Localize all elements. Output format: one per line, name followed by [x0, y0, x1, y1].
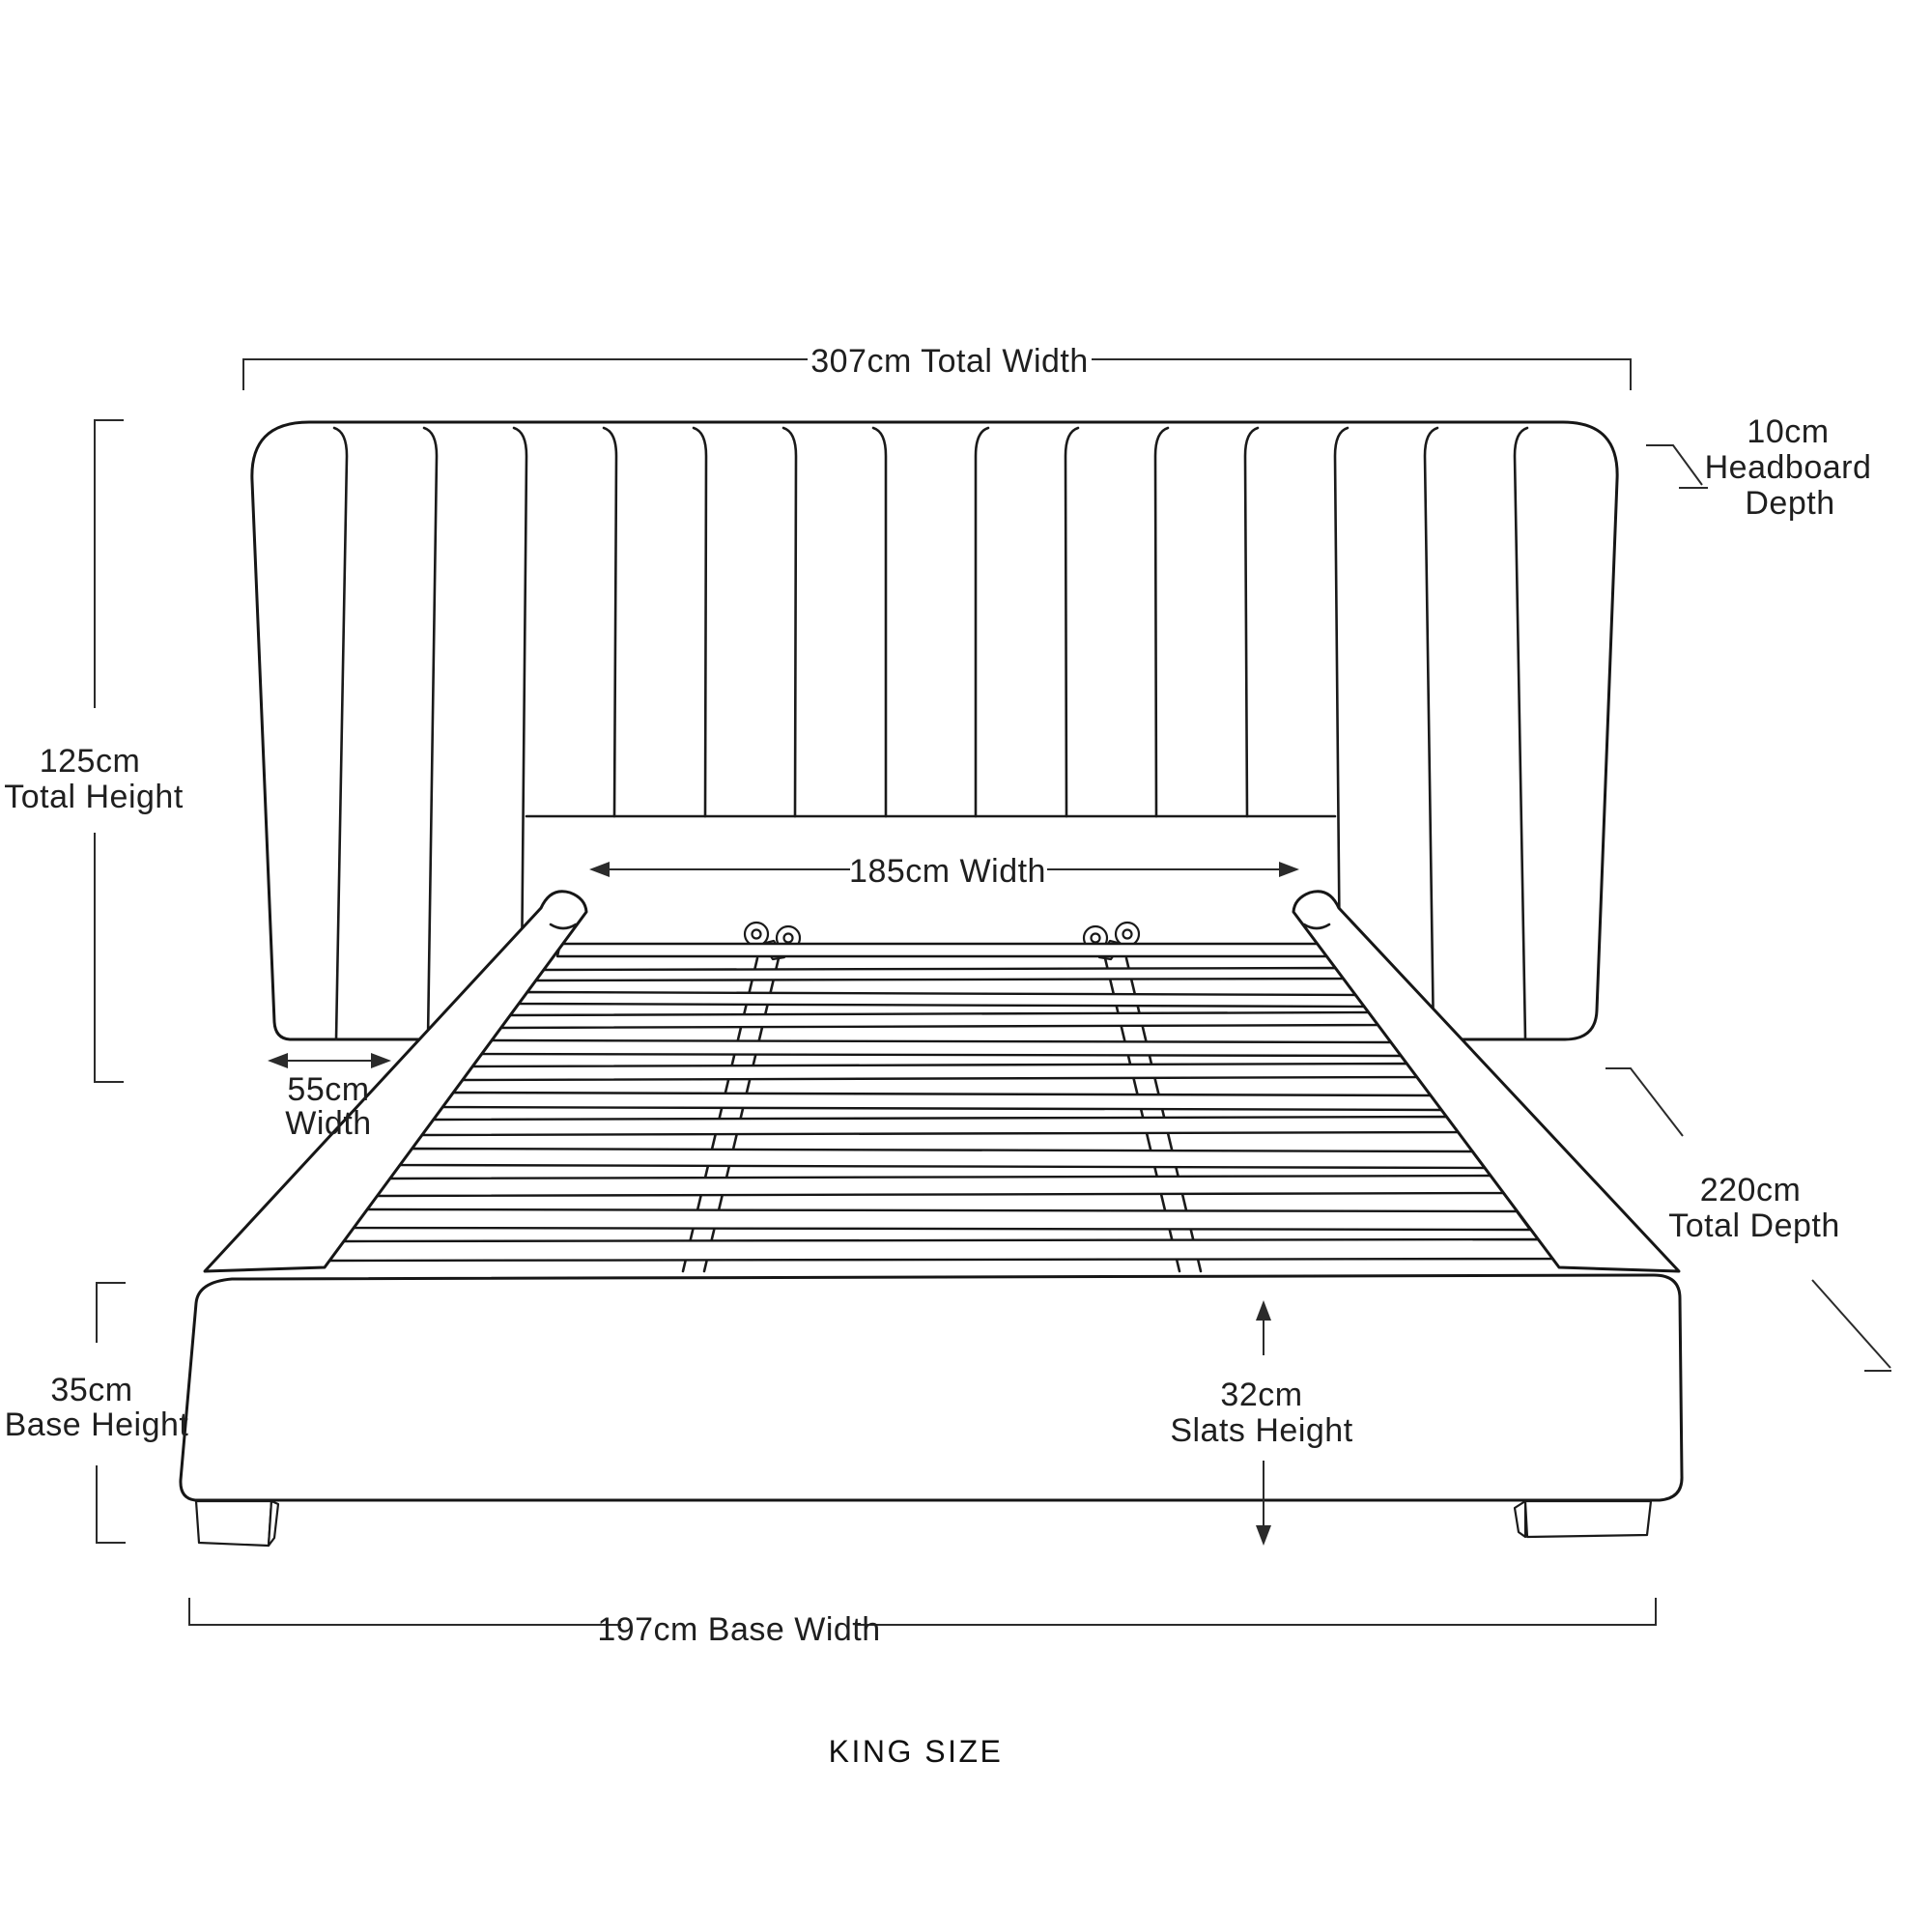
bed-dimension-diagram: 307cm Total Width 10cm Headboard Depth 1…: [0, 0, 1932, 1932]
dim-total-height: 125cm Total Height: [4, 420, 184, 1082]
diagram-canvas: 307cm Total Width 10cm Headboard Depth 1…: [0, 0, 1932, 1932]
dim-total-width: 307cm Total Width: [243, 343, 1631, 390]
slat: [441, 1093, 1442, 1110]
dim-slats-height-label: Slats Height: [1170, 1412, 1352, 1449]
dim-headboard-depth-value: 10cm: [1747, 413, 1829, 450]
dim-headboard-depth-label2: Depth: [1745, 485, 1834, 522]
dim-base-height: 35cm Base Height: [5, 1283, 189, 1543]
slat: [480, 1040, 1404, 1056]
arrowhead-left-icon: [589, 862, 610, 877]
right-leg-side: [1515, 1501, 1525, 1537]
slat: [516, 992, 1367, 1007]
slat: [533, 968, 1350, 980]
bed-base: [181, 1275, 1682, 1546]
arrowhead-right-icon: [371, 1053, 391, 1068]
slat: [461, 1064, 1423, 1080]
dim-base-height-value: 35cm: [50, 1372, 132, 1408]
dim-headboard-depth-label1: Headboard: [1705, 449, 1872, 486]
right-leg: [1525, 1501, 1651, 1537]
slat: [329, 1239, 1554, 1261]
dim-headboard-depth: 10cm Headboard Depth: [1646, 413, 1871, 522]
dim-total-depth-label: Total Depth: [1668, 1207, 1840, 1244]
size-caption: KING SIZE: [829, 1734, 1004, 1769]
base-front-face: [181, 1275, 1682, 1500]
dim-wing-width-value: 55cm: [287, 1071, 369, 1108]
slat: [399, 1149, 1485, 1168]
slat: [377, 1176, 1507, 1196]
arrowhead-left-icon: [268, 1053, 288, 1068]
slat: [498, 1012, 1385, 1028]
dim-inner-width-label: 185cm Width: [849, 853, 1046, 890]
dim-slats-height-value: 32cm: [1220, 1377, 1302, 1413]
arrowhead-down-icon: [1256, 1525, 1271, 1546]
left-leg: [196, 1501, 271, 1546]
slat: [354, 1209, 1530, 1230]
dim-total-height-value: 125cm: [40, 743, 141, 780]
bed-legs: [196, 1501, 1651, 1546]
dim-total-depth-value: 220cm: [1700, 1172, 1802, 1208]
slat-deck-back-bar: [557, 944, 1326, 956]
dim-wing-width-label: Width: [285, 1105, 371, 1142]
dim-base-width-label: 197cm Base Width: [597, 1611, 880, 1648]
arrowhead-right-icon: [1279, 862, 1299, 877]
dim-total-height-label: Total Height: [4, 779, 184, 815]
slat: [421, 1117, 1463, 1135]
left-leg-side: [269, 1501, 278, 1546]
dim-inner-width: 185cm Width: [589, 853, 1299, 890]
dim-base-height-label: Base Height: [5, 1406, 189, 1443]
dim-total-width-label: 307cm Total Width: [810, 343, 1089, 380]
dim-base-width: 197cm Base Width: [189, 1598, 1656, 1648]
